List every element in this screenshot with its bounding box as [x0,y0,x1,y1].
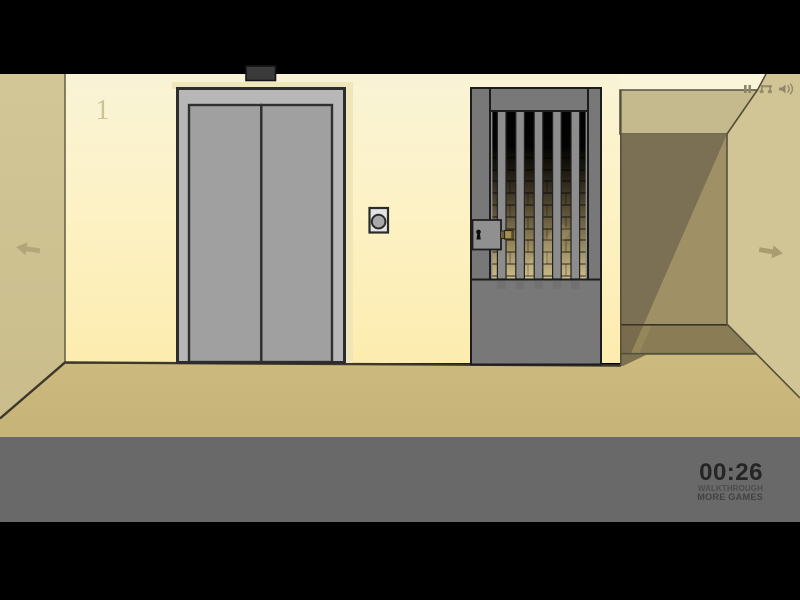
svg-text:1: 1 [96,95,110,126]
